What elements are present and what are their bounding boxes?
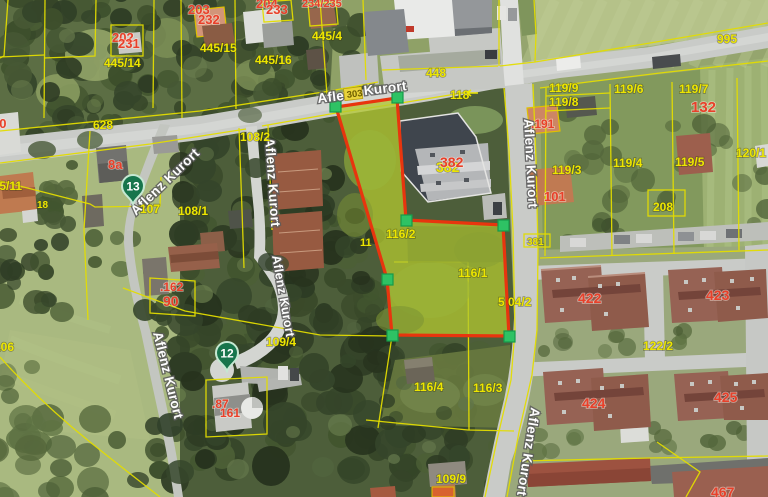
- svg-text:424: 424: [582, 395, 606, 411]
- svg-text:422: 422: [578, 290, 602, 306]
- svg-text:118: 118: [450, 88, 470, 102]
- svg-text:995: 995: [717, 32, 737, 46]
- svg-text:109/9: 109/9: [436, 472, 466, 486]
- svg-text:12: 12: [220, 347, 234, 361]
- svg-text:445/14: 445/14: [104, 56, 141, 70]
- svg-text:18: 18: [37, 200, 49, 211]
- svg-text:445/11: 445/11: [0, 179, 22, 193]
- svg-text:120/1: 120/1: [736, 146, 766, 160]
- svg-text:119/6: 119/6: [614, 82, 644, 96]
- svg-text:10: 10: [0, 116, 6, 131]
- svg-text:116/2: 116/2: [386, 227, 416, 241]
- svg-text:234/235: 234/235: [302, 0, 342, 10]
- svg-text:.162: .162: [160, 280, 184, 294]
- svg-text:132: 132: [691, 99, 716, 116]
- svg-text:108/2: 108/2: [240, 130, 270, 144]
- svg-text:445/15: 445/15: [200, 41, 237, 55]
- svg-text:233: 233: [266, 2, 288, 17]
- svg-text:109/4: 109/4: [266, 335, 296, 349]
- svg-text:108/1: 108/1: [178, 204, 208, 218]
- svg-text:107: 107: [140, 202, 160, 216]
- svg-text:445/16: 445/16: [255, 53, 292, 67]
- svg-text:231: 231: [118, 36, 140, 51]
- svg-text:90: 90: [163, 293, 179, 309]
- svg-text:8a: 8a: [108, 157, 123, 172]
- svg-text:122/2: 122/2: [643, 339, 673, 353]
- svg-text:119/7: 119/7: [679, 82, 709, 96]
- svg-text:119/9: 119/9: [549, 81, 579, 95]
- svg-text:382: 382: [440, 154, 464, 170]
- svg-text:116/1: 116/1: [458, 266, 488, 280]
- svg-text:11: 11: [360, 237, 372, 249]
- svg-text:5 04/2: 5 04/2: [498, 295, 532, 309]
- svg-text:116/3: 116/3: [473, 381, 503, 395]
- svg-text:425: 425: [714, 389, 738, 405]
- svg-text:13: 13: [126, 180, 140, 194]
- svg-text:101: 101: [544, 189, 566, 204]
- svg-text:119/3: 119/3: [552, 163, 582, 177]
- svg-text:116/4: 116/4: [414, 380, 444, 394]
- svg-text:208: 208: [653, 200, 673, 214]
- svg-text:303: 303: [346, 88, 363, 101]
- svg-text:423: 423: [706, 287, 730, 303]
- svg-text:161: 161: [220, 406, 240, 420]
- svg-text:381: 381: [527, 237, 544, 248]
- svg-text:448: 448: [426, 66, 446, 80]
- svg-text:628: 628: [93, 118, 113, 132]
- svg-text:467: 467: [711, 484, 735, 497]
- svg-text:.191: .191: [531, 117, 555, 131]
- svg-text:119/5: 119/5: [675, 155, 705, 169]
- svg-text:232: 232: [198, 12, 220, 27]
- svg-text:106: 106: [0, 340, 14, 354]
- svg-text:119/4: 119/4: [613, 156, 643, 170]
- svg-text:445/4: 445/4: [312, 29, 342, 43]
- svg-text:119/8: 119/8: [549, 95, 579, 109]
